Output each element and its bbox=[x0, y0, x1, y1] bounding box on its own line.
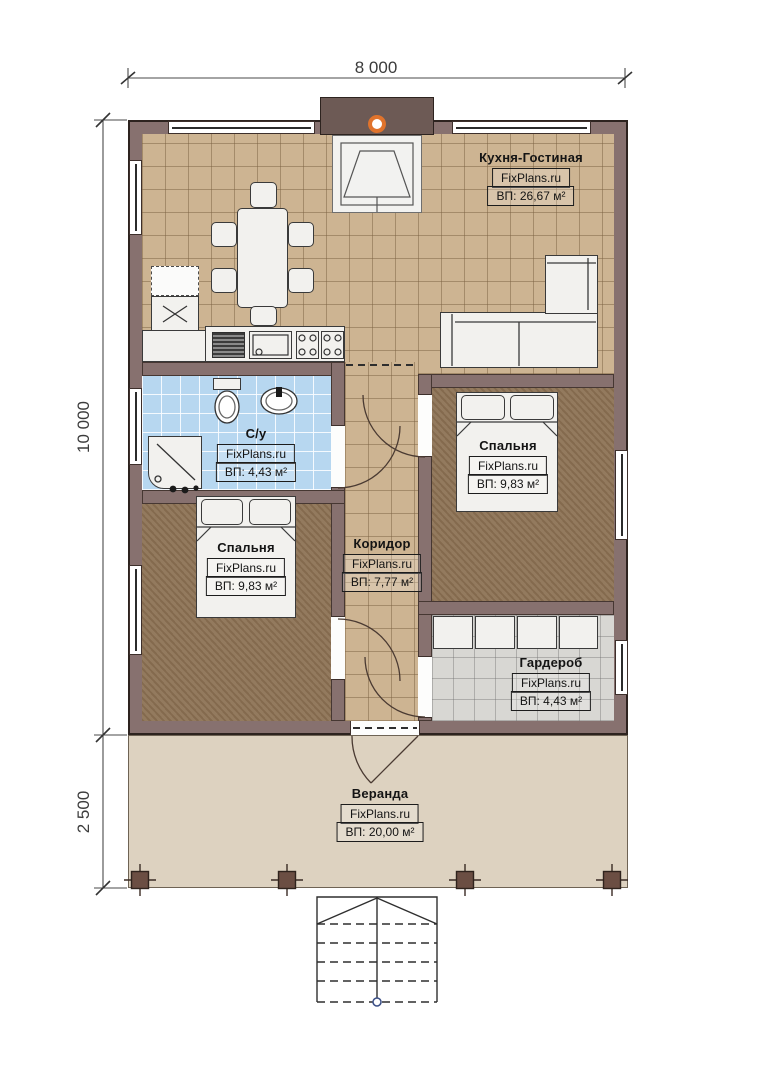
area-box: ВП: 4,43 м² bbox=[511, 691, 591, 711]
fireplace bbox=[332, 135, 422, 213]
pillow bbox=[201, 499, 243, 525]
door-opening-entrance bbox=[350, 721, 420, 735]
dimension-veranda-height: 2 500 bbox=[74, 791, 94, 834]
pillow bbox=[461, 395, 505, 420]
door-opening-wardrobe bbox=[418, 656, 432, 718]
window-right-bedroom bbox=[615, 450, 628, 540]
window-top-right bbox=[452, 121, 591, 134]
room-label-bathroom: С/у FixPlans.ru ВП: 4,43 м² bbox=[216, 426, 296, 482]
room-name: Спальня bbox=[479, 438, 537, 453]
window-top-left bbox=[168, 121, 315, 134]
door-opening-bedroom-right bbox=[418, 394, 432, 457]
window-left-bedroom bbox=[129, 565, 142, 655]
wardrobe-cabinet bbox=[433, 616, 473, 649]
sofa-horizontal bbox=[440, 312, 598, 368]
area-box: ВП: 9,83 м² bbox=[206, 576, 286, 596]
room-name: Спальня bbox=[217, 540, 275, 555]
window-left-kitchen bbox=[129, 160, 142, 235]
room-label-bedroom-left: Спальня FixPlans.ru ВП: 9,83 м² bbox=[206, 540, 286, 596]
dining-table bbox=[237, 208, 288, 308]
counter-left bbox=[142, 330, 207, 362]
wall-bathroom-top bbox=[142, 362, 345, 376]
room-label-bedroom-right: Спальня FixPlans.ru ВП: 9,83 м² bbox=[468, 438, 548, 494]
appliance-dashed-box bbox=[151, 266, 199, 296]
brand-box: FixPlans.ru bbox=[207, 558, 285, 578]
dishwasher bbox=[212, 332, 245, 358]
area-box: ВП: 4,43 м² bbox=[216, 462, 296, 482]
brand-box: FixPlans.ru bbox=[217, 444, 295, 464]
window-left-bathroom bbox=[129, 388, 142, 465]
chair bbox=[288, 222, 314, 247]
door-opening-bedroom-left bbox=[331, 616, 345, 680]
wall-bedroom-right-top bbox=[418, 374, 614, 388]
kitchen-sink bbox=[249, 331, 292, 359]
brand-box: FixPlans.ru bbox=[492, 168, 570, 188]
chair bbox=[250, 182, 277, 208]
dimension-left-height: 10 000 bbox=[74, 401, 94, 453]
chair bbox=[211, 222, 237, 247]
toilet-tank bbox=[213, 378, 241, 390]
room-label-kitchen-living: Кухня-Гостиная FixPlans.ru ВП: 26,67 м² bbox=[479, 150, 583, 206]
room-label-corridor: Коридор FixPlans.ru ВП: 7,77 м² bbox=[342, 536, 422, 592]
area-box: ВП: 7,77 м² bbox=[342, 572, 422, 592]
window-right-wardrobe bbox=[615, 640, 628, 695]
door-opening-bathroom bbox=[331, 425, 345, 488]
room-name: Кухня-Гостиная bbox=[479, 150, 583, 165]
pillow bbox=[249, 499, 291, 525]
room-name: Веранда bbox=[352, 786, 409, 801]
brand-box: FixPlans.ru bbox=[341, 804, 419, 824]
chair bbox=[211, 268, 237, 293]
shower bbox=[148, 436, 202, 489]
sofa-vertical bbox=[545, 255, 598, 314]
room-label-veranda: Веранда FixPlans.ru ВП: 20,00 м² bbox=[337, 786, 424, 842]
area-box: ВП: 20,00 м² bbox=[337, 822, 424, 842]
stove-panel bbox=[296, 331, 319, 359]
brand-box: FixPlans.ru bbox=[343, 554, 421, 574]
chair bbox=[288, 268, 314, 293]
area-box: ВП: 26,67 м² bbox=[488, 186, 575, 206]
area-box: ВП: 9,83 м² bbox=[468, 474, 548, 494]
wall-bedroom-wardrobe bbox=[418, 601, 614, 615]
room-label-wardrobe: Гардероб FixPlans.ru ВП: 4,43 м² bbox=[511, 655, 591, 711]
room-name: С/у bbox=[246, 426, 267, 441]
dimension-top-width: 8 000 bbox=[355, 58, 398, 78]
steps bbox=[317, 897, 437, 1006]
chair bbox=[250, 306, 277, 326]
wardrobe-cabinet bbox=[475, 616, 515, 649]
stove-panel bbox=[321, 331, 344, 359]
fridge bbox=[151, 296, 199, 332]
wardrobe-cabinet bbox=[559, 616, 598, 649]
brand-box: FixPlans.ru bbox=[469, 456, 547, 476]
pillow bbox=[510, 395, 554, 420]
brand-box: FixPlans.ru bbox=[512, 673, 590, 693]
floor-plan: 8 000 10 000 2 500 bbox=[0, 0, 763, 1080]
chimney-block bbox=[320, 97, 434, 135]
room-name: Гардероб bbox=[519, 655, 582, 670]
wardrobe-cabinet bbox=[517, 616, 557, 649]
room-name: Коридор bbox=[353, 536, 410, 551]
